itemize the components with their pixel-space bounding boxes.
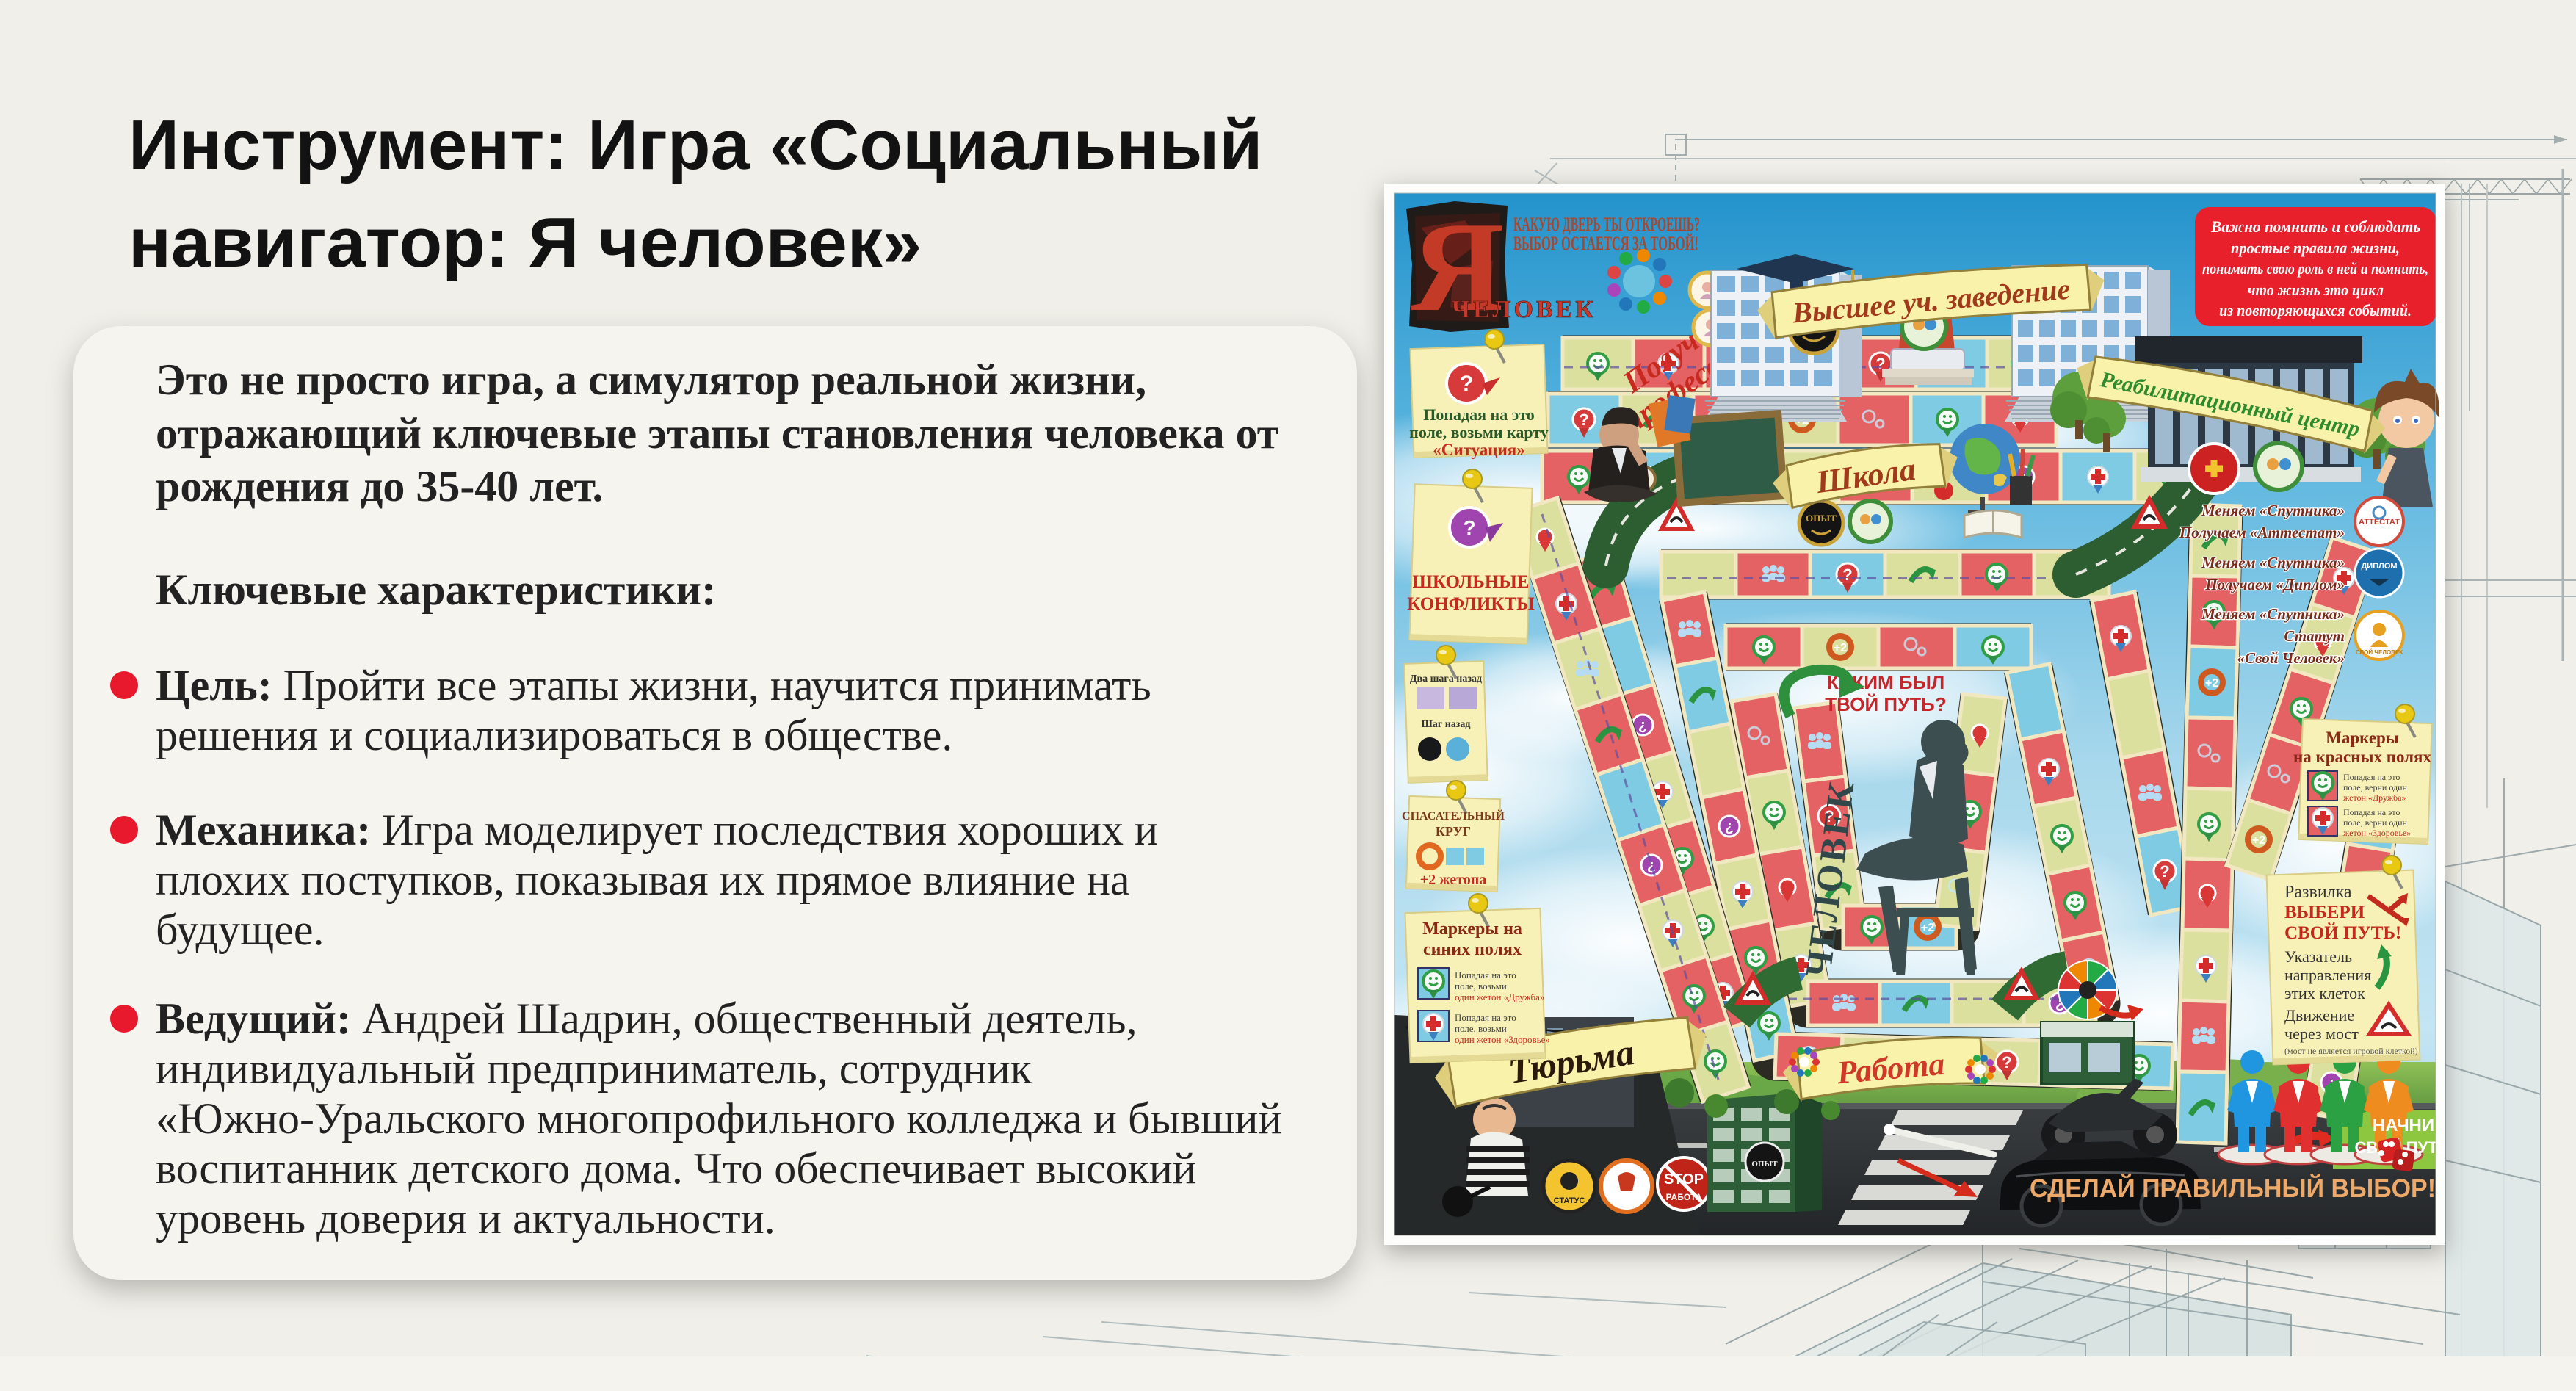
svg-text:поле, верни один: поле, верни один [2343, 782, 2408, 792]
svg-text:ОПЫТ: ОПЫТ [1806, 513, 1837, 524]
svg-text:жетон «Здоровье»: жетон «Здоровье» [2342, 828, 2411, 838]
svg-text:Попадая на это: Попадая на это [1455, 969, 1516, 980]
svg-text:СТАТУС: СТАТУС [1554, 1196, 1585, 1205]
svg-text:?: ? [2002, 1053, 2011, 1072]
svg-text:простые правила жизни,: простые правила жизни, [2231, 239, 2400, 257]
svg-text:+2: +2 [2252, 834, 2265, 847]
svg-text:ТВОЙ ПУТЬ?: ТВОЙ ПУТЬ? [1825, 693, 1946, 715]
svg-text:¿: ¿ [1647, 858, 1656, 874]
svg-text:жетон «Дружба»: жетон «Дружба» [2342, 792, 2406, 803]
svg-text:«Ситуация»: «Ситуация» [1433, 441, 1525, 459]
svg-text:синих полях: синих полях [1423, 940, 1522, 959]
svg-text:Меняем «Спутника»: Меняем «Спутника» [2201, 605, 2345, 623]
svg-text:ДИПЛОМ: ДИПЛОМ [2361, 562, 2397, 571]
svg-text:?: ? [2160, 862, 2169, 881]
svg-text:Меняем «Спутника»: Меняем «Спутника» [2201, 554, 2345, 571]
svg-text:Попадая на это: Попадая на это [2343, 772, 2400, 782]
svg-text:¿: ¿ [1638, 718, 1647, 734]
svg-text:«Свой Человек»: «Свой Человек» [2237, 649, 2345, 667]
svg-text:?: ? [1579, 411, 1588, 429]
svg-text:поле, возьми: поле, возьми [1455, 1023, 1507, 1034]
svg-text:+2: +2 [1921, 922, 1934, 934]
svg-text:Попадая на это: Попадая на это [2343, 807, 2400, 817]
svg-text:СВОЙ ЧЕЛОВЕК: СВОЙ ЧЕЛОВЕК [2356, 649, 2403, 656]
svg-text:ОПЫТ: ОПЫТ [1751, 1160, 1778, 1168]
svg-text:на красных полях: на красных полях [2293, 748, 2432, 766]
svg-text:(мост не является игровой клет: (мост не является игровой клеткой) [2284, 1046, 2418, 1056]
svg-text:Статут: Статут [2284, 627, 2345, 645]
svg-text:что жизнь это цикл: что жизнь это цикл [2248, 281, 2384, 299]
svg-text:НАЧНИ: НАЧНИ [2373, 1116, 2434, 1135]
svg-text:один жетон «Здоровье»: один жетон «Здоровье» [1455, 1034, 1550, 1045]
svg-text:Шаг назад: Шаг назад [1421, 719, 1470, 730]
svg-text:КОНФЛИКТЫ: КОНФЛИКТЫ [1407, 594, 1535, 614]
svg-text:?: ? [1463, 516, 1475, 539]
svg-text:один жетон «Дружба»: один жетон «Дружба» [1455, 991, 1544, 1002]
svg-text:ЧЕЛОВЕК: ЧЕЛОВЕК [1452, 296, 1596, 323]
svg-text:?: ? [1842, 566, 1852, 584]
svg-text:поле, верни один: поле, верни один [2343, 817, 2408, 828]
svg-text:поле, возьми: поле, возьми [1455, 980, 1507, 991]
svg-text:КРУГ: КРУГ [1436, 824, 1471, 839]
svg-text:ВЫБОР ОСТАЕТСЯ ЗА ТОБОЙ!: ВЫБОР ОСТАЕТСЯ ЗА ТОБОЙ! [1513, 233, 1698, 254]
svg-text:СВОЙ ПУТЬ!: СВОЙ ПУТЬ! [2284, 922, 2401, 943]
svg-text:Указатель: Указатель [2284, 947, 2352, 966]
svg-text:Движение: Движение [2284, 1006, 2354, 1025]
svg-text:+2: +2 [2205, 677, 2218, 690]
svg-text:Маркеры на: Маркеры на [1422, 919, 1522, 939]
svg-text:Меняем «Спутника»: Меняем «Спутника» [2201, 502, 2345, 519]
svg-text:+2: +2 [1834, 642, 1847, 654]
svg-text:этих клеток: этих клеток [2284, 984, 2365, 1002]
svg-text:понимать свою роль в ней и пом: понимать свою роль в ней и помнить, [2202, 259, 2428, 278]
svg-text:через мост: через мост [2284, 1025, 2359, 1043]
svg-text:ШКОЛЬНЫЕ: ШКОЛЬНЫЕ [1413, 572, 1530, 592]
svg-text:Два шага назад: Два шага назад [1410, 673, 1482, 684]
svg-text:ВЫБЕРИ: ВЫБЕРИ [2284, 903, 2365, 922]
svg-text:из повторяющихся событий.: из повторяющихся событий. [2219, 301, 2412, 319]
svg-text:?: ? [1460, 372, 1473, 396]
svg-text:Маркеры: Маркеры [2326, 729, 2399, 747]
svg-text:¿: ¿ [1725, 819, 1734, 835]
svg-text:Получаем «Диплом»: Получаем «Диплом» [2204, 576, 2345, 593]
svg-text:Попадая на это: Попадая на это [1455, 1012, 1516, 1023]
svg-text:Получаем «Аттестат»: Получаем «Аттестат» [2179, 524, 2345, 541]
svg-text:направления: направления [2284, 966, 2371, 984]
svg-text:СПАСАТЕЛЬНЫЙ: СПАСАТЕЛЬНЫЙ [1402, 809, 1505, 823]
svg-text:Попадая на это: Попадая на это [1423, 405, 1535, 424]
svg-text:поле, возьми карту: поле, возьми карту [1409, 423, 1549, 441]
svg-text:Важно помнить и соблюдать: Важно помнить и соблюдать [2210, 217, 2420, 236]
svg-text:Развилка: Развилка [2284, 883, 2352, 902]
svg-text:КАКУЮ ДВЕРЬ ТЫ ОТКРОЕШЬ?: КАКУЮ ДВЕРЬ ТЫ ОТКРОЕШЬ? [1513, 214, 1700, 235]
svg-text:+2 жетона: +2 жетона [1420, 872, 1487, 888]
svg-text:СДЕЛАЙ ПРАВИЛЬНЫЙ ВЫБОР!: СДЕЛАЙ ПРАВИЛЬНЫЙ ВЫБОР! [2030, 1174, 2436, 1203]
